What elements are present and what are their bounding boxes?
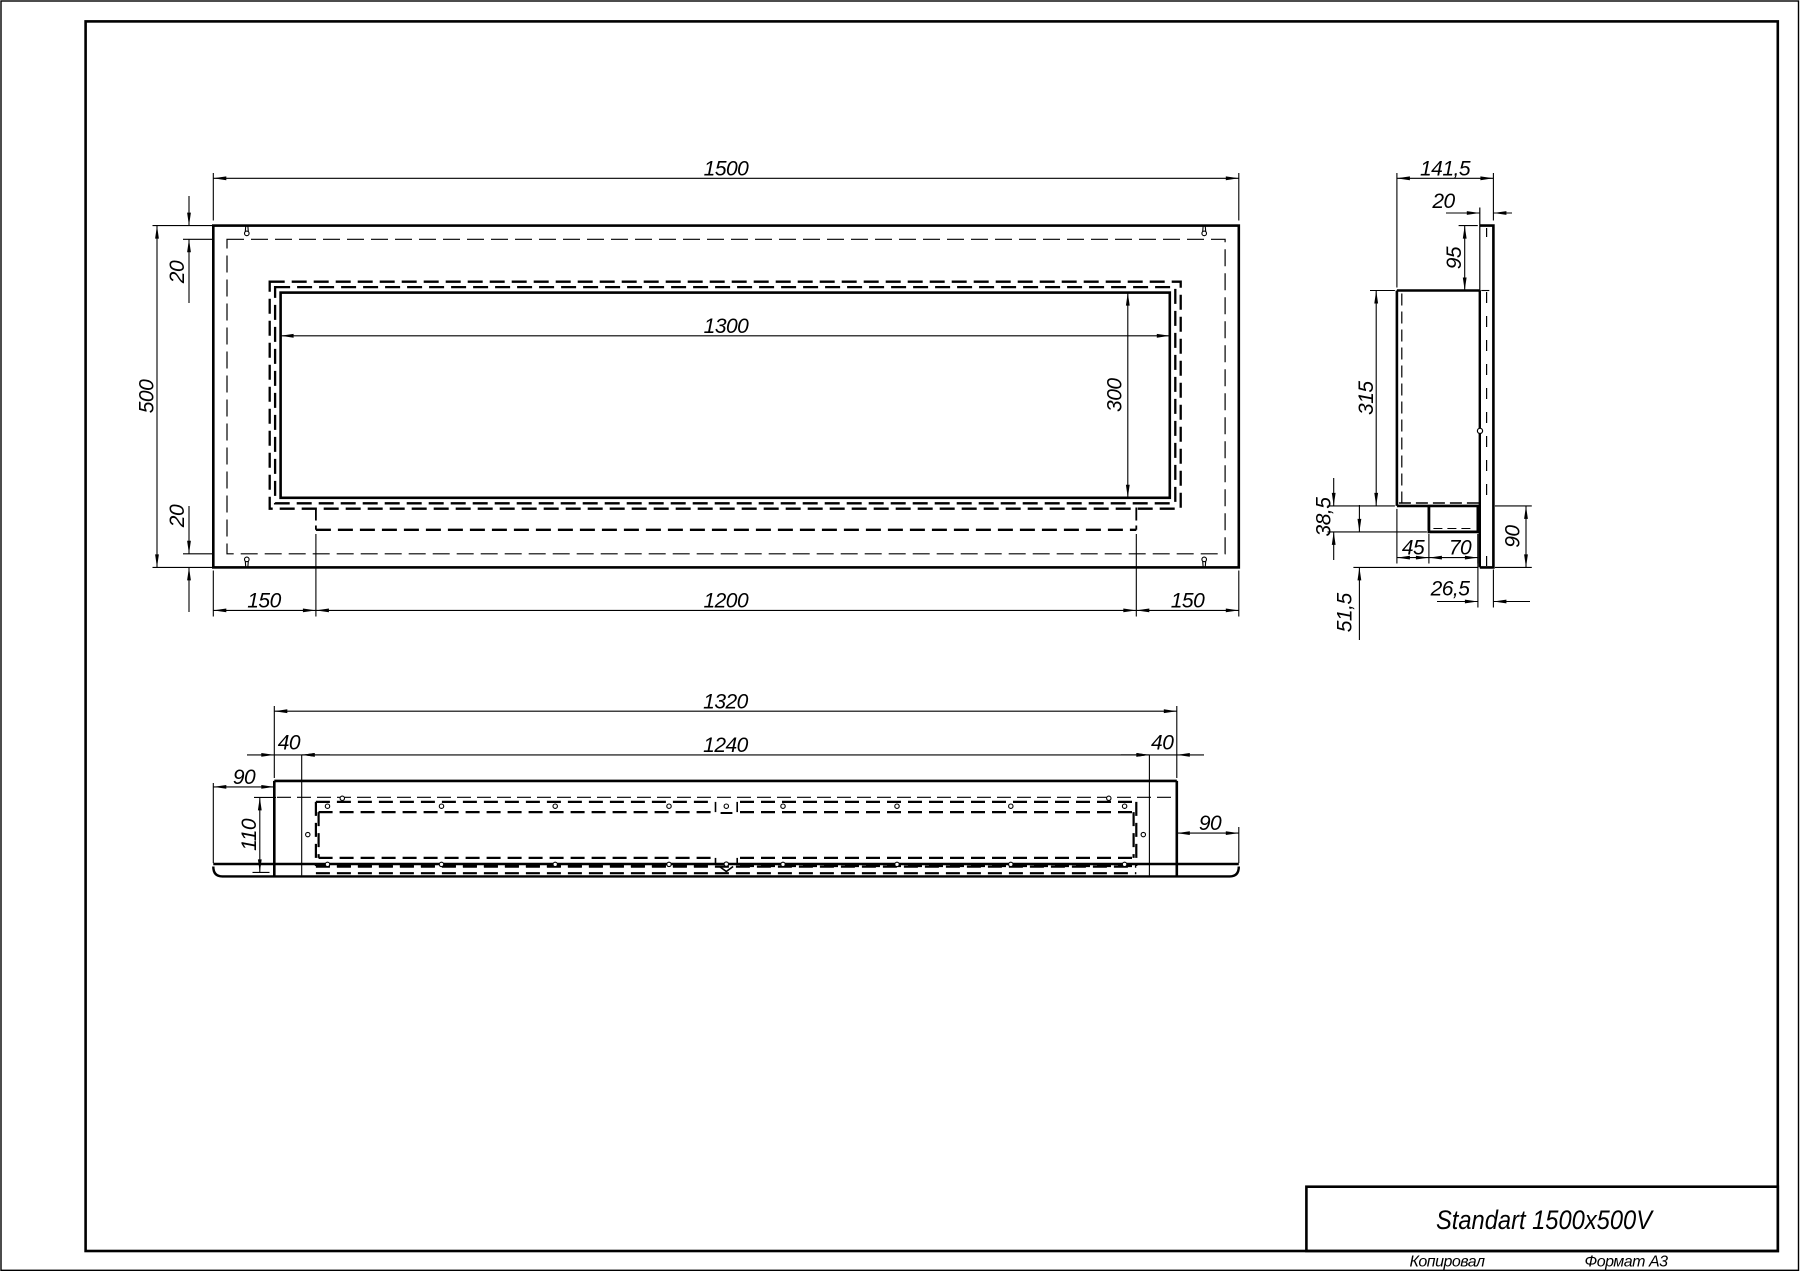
svg-text:300: 300: [1104, 378, 1127, 412]
svg-text:Копировал: Копировал: [1409, 1253, 1485, 1270]
svg-text:20: 20: [1431, 190, 1455, 213]
svg-text:Standart 1500x500V: Standart 1500x500V: [1436, 1205, 1655, 1235]
svg-text:110: 110: [238, 818, 261, 851]
svg-text:1240: 1240: [703, 734, 749, 757]
svg-text:40: 40: [1151, 732, 1174, 755]
svg-text:500: 500: [136, 379, 159, 413]
svg-text:40: 40: [278, 732, 301, 755]
svg-text:20: 20: [166, 260, 189, 284]
svg-text:1200: 1200: [703, 590, 749, 613]
svg-text:1500: 1500: [704, 157, 750, 180]
svg-text:1300: 1300: [704, 315, 750, 338]
svg-text:45: 45: [1402, 537, 1425, 560]
svg-text:150: 150: [1171, 590, 1205, 613]
svg-text:95: 95: [1443, 246, 1466, 269]
svg-text:20: 20: [166, 504, 189, 528]
svg-text:70: 70: [1449, 537, 1472, 560]
svg-text:150: 150: [247, 590, 281, 613]
svg-text:Формат А3: Формат А3: [1584, 1253, 1668, 1270]
svg-text:38,5: 38,5: [1312, 497, 1335, 537]
svg-text:90: 90: [233, 766, 256, 789]
svg-text:51,5: 51,5: [1334, 593, 1357, 633]
svg-text:141,5: 141,5: [1420, 157, 1471, 180]
svg-text:1320: 1320: [703, 690, 749, 713]
svg-text:90: 90: [1502, 525, 1525, 548]
svg-text:315: 315: [1355, 381, 1378, 415]
svg-text:90: 90: [1199, 812, 1222, 835]
svg-text:26,5: 26,5: [1430, 578, 1471, 601]
